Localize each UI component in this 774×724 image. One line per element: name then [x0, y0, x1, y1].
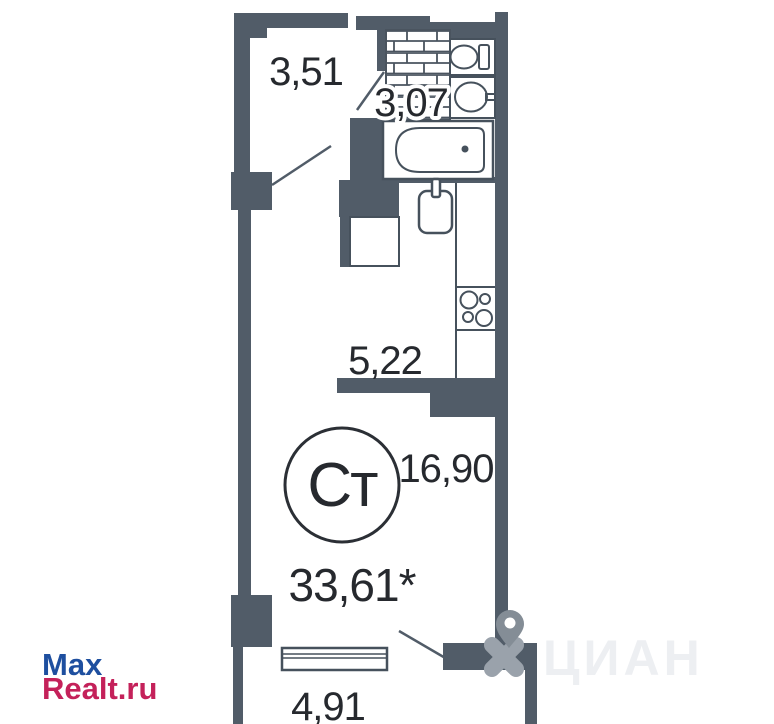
washer-niche [350, 217, 399, 266]
area-label-bathroom: 3,07 [374, 81, 448, 125]
toilet-icon [450, 39, 495, 75]
total-area-label: 33,61* [288, 559, 416, 611]
balcony-window [282, 648, 387, 670]
kitchen-sink-icon [419, 179, 452, 233]
unit-type-label: Ст [307, 451, 378, 520]
washbasin-icon [450, 77, 495, 118]
floor-plan-svg: Ст 3,51 3,07 5,22 16,90 33,61* 4,91 Max … [0, 0, 774, 724]
maxrealt-watermark: Max Realt.ru [42, 647, 157, 706]
area-label-hallway: 3,51 [269, 50, 343, 94]
floorplan-page: Ст 3,51 3,07 5,22 16,90 33,61* 4,91 Max … [0, 0, 774, 724]
entry-door-swing-line [272, 146, 331, 185]
stove-icon [456, 287, 495, 330]
cian-watermark: ЦИАН [481, 610, 704, 686]
unit-type-badge: Ст [285, 428, 399, 542]
bathtub-icon [383, 121, 493, 179]
area-label-kitchen: 5,22 [348, 339, 422, 383]
area-label-living-room: 16,90 [398, 447, 493, 491]
balcony-door-swing-line [399, 631, 447, 659]
maxrealt-watermark-line2: Realt.ru [42, 671, 157, 706]
area-label-balcony: 4,91 [291, 685, 365, 724]
cian-watermark-text: ЦИАН [543, 630, 704, 686]
